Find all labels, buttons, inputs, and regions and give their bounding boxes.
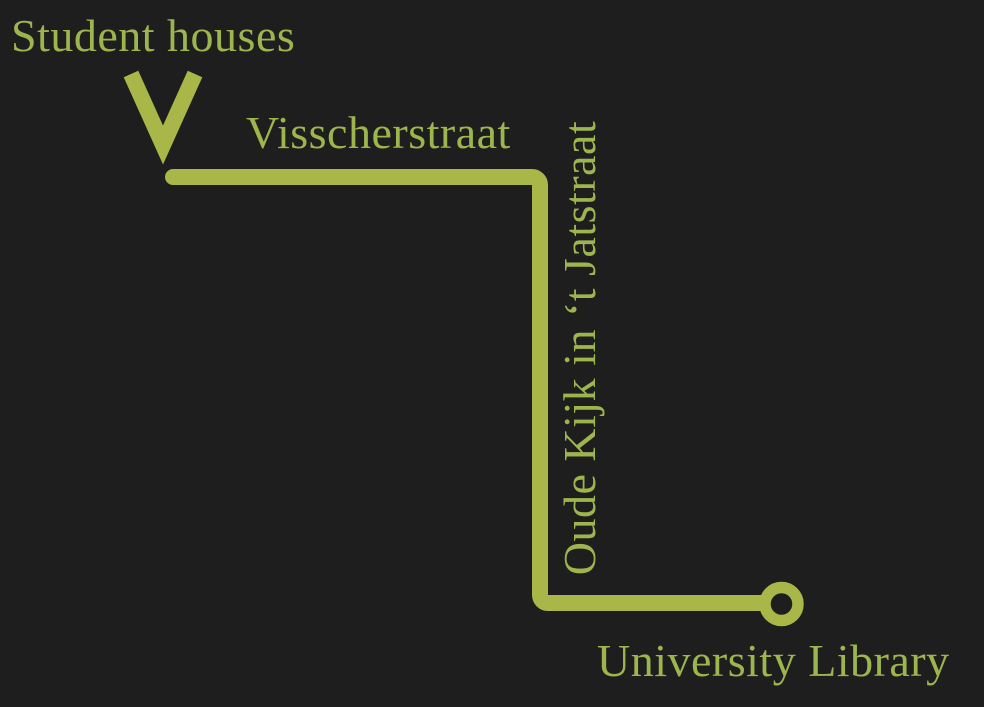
double-chevron-down-icon (131, 74, 195, 145)
ring-marker-icon (765, 588, 798, 621)
street-label-oude-kijk-in-t-jatstraat: Oude Kijk in ‘t Jatstraat (557, 121, 603, 576)
route-map: Student houses Visscherstraat Oude Kijk … (0, 0, 984, 707)
street-label-visscherstraat: Visscherstraat (246, 110, 511, 156)
start-label: Student houses (11, 13, 295, 59)
route-path (173, 177, 762, 603)
end-label: University Library (597, 638, 950, 684)
